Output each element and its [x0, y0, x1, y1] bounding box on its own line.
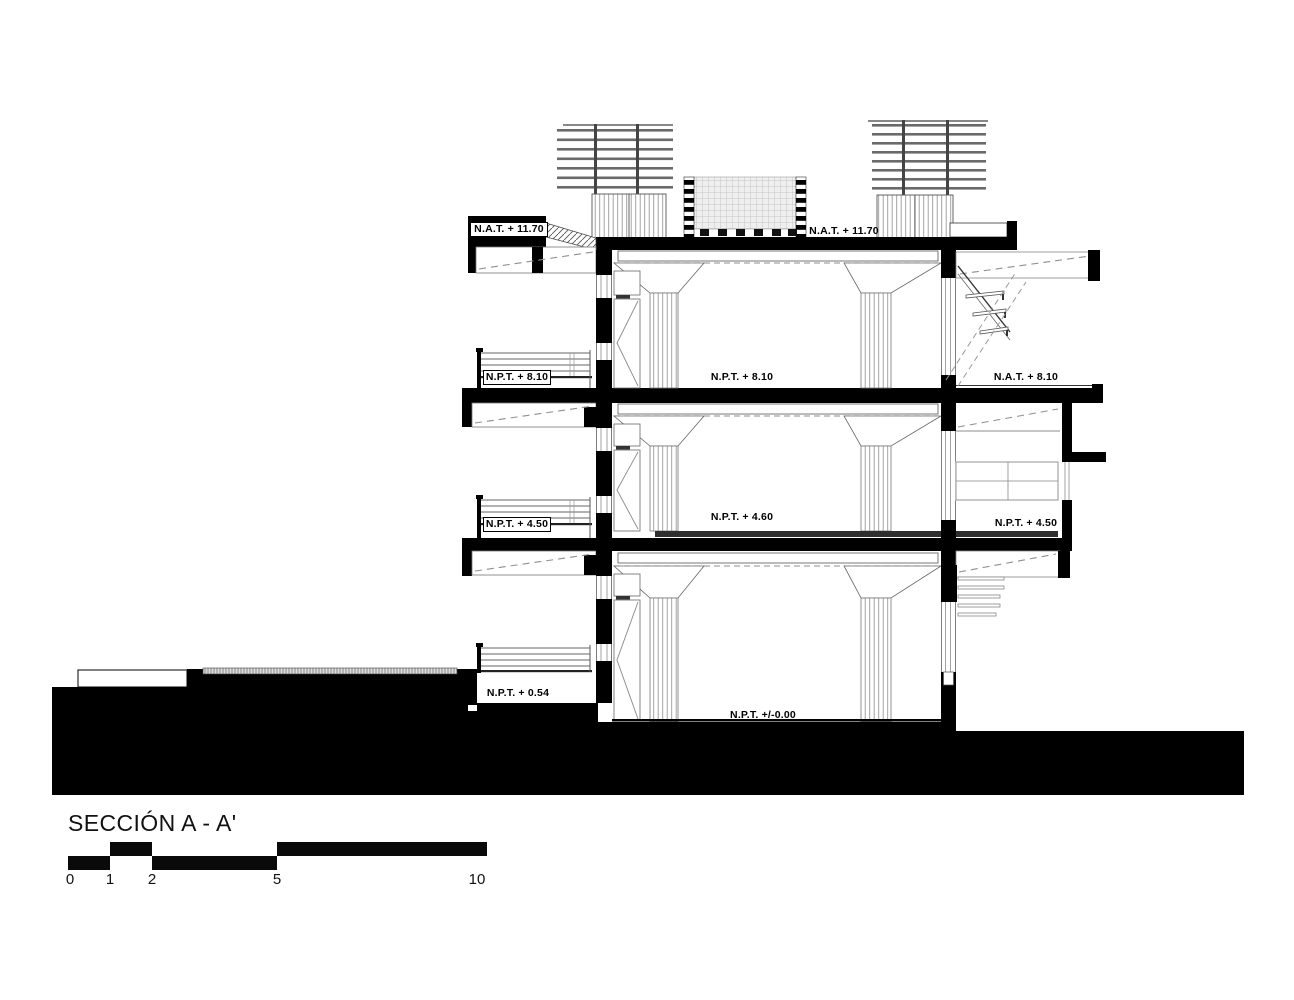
scale-mark: 2: [145, 871, 159, 888]
left-wall: [596, 250, 612, 703]
rooftop-mesh-screen: [684, 177, 806, 237]
level-label-npt-450-left: N.P.T. + 4.50: [483, 517, 551, 532]
rooftop-right-louver-stack: [868, 120, 988, 238]
terrace-railing-ground: [476, 643, 592, 673]
right-annex: [943, 250, 1106, 616]
scale-mark: 10: [466, 871, 488, 888]
level-label-npt-460-center: N.P.T. + 4.60: [702, 511, 782, 523]
scale-bar-segment: [110, 842, 152, 856]
level-label-npt-054: N.P.T. + 0.54: [478, 687, 558, 699]
interior-ground-floor: [612, 553, 941, 722]
level-label-nat-810-right: N.A.T. + 8.10: [986, 371, 1066, 383]
level-label-npt-810-center: N.P.T. + 8.10: [702, 371, 782, 383]
level-label-nat-1170-right: N.A.T. + 11.70: [806, 225, 882, 237]
drawing-canvas: N.A.T. + 11.70 N.A.T. + 11.70 N.P.T. + 8…: [0, 0, 1294, 1000]
scale-mark: 5: [270, 871, 284, 888]
drawing-title: SECCIÓN A - A': [68, 810, 237, 837]
level-label-nat-1170-left: N.A.T. + 11.70: [470, 222, 548, 237]
scale-bar-segment: [277, 842, 487, 856]
level-label-npt-810-left: N.P.T. + 8.10: [483, 370, 551, 385]
section-linework: [0, 0, 1294, 1000]
scale-mark: 1: [103, 871, 117, 888]
level-label-npt-450-right: N.P.T. + 4.50: [986, 517, 1066, 529]
scale-bar-segment: [68, 856, 110, 870]
terrain: [52, 668, 1244, 795]
floor-slab-450: [462, 538, 1072, 551]
floor-slab-810: [462, 384, 1103, 403]
scale-bar-segment: [152, 856, 277, 870]
level-label-npt-000: N.P.T. +/-0.00: [720, 709, 806, 721]
interior-top-floor: [614, 251, 941, 388]
scale-mark: 0: [63, 871, 77, 888]
rooftop-left-louver-stack: [557, 124, 673, 238]
right-wall: [941, 250, 956, 731]
